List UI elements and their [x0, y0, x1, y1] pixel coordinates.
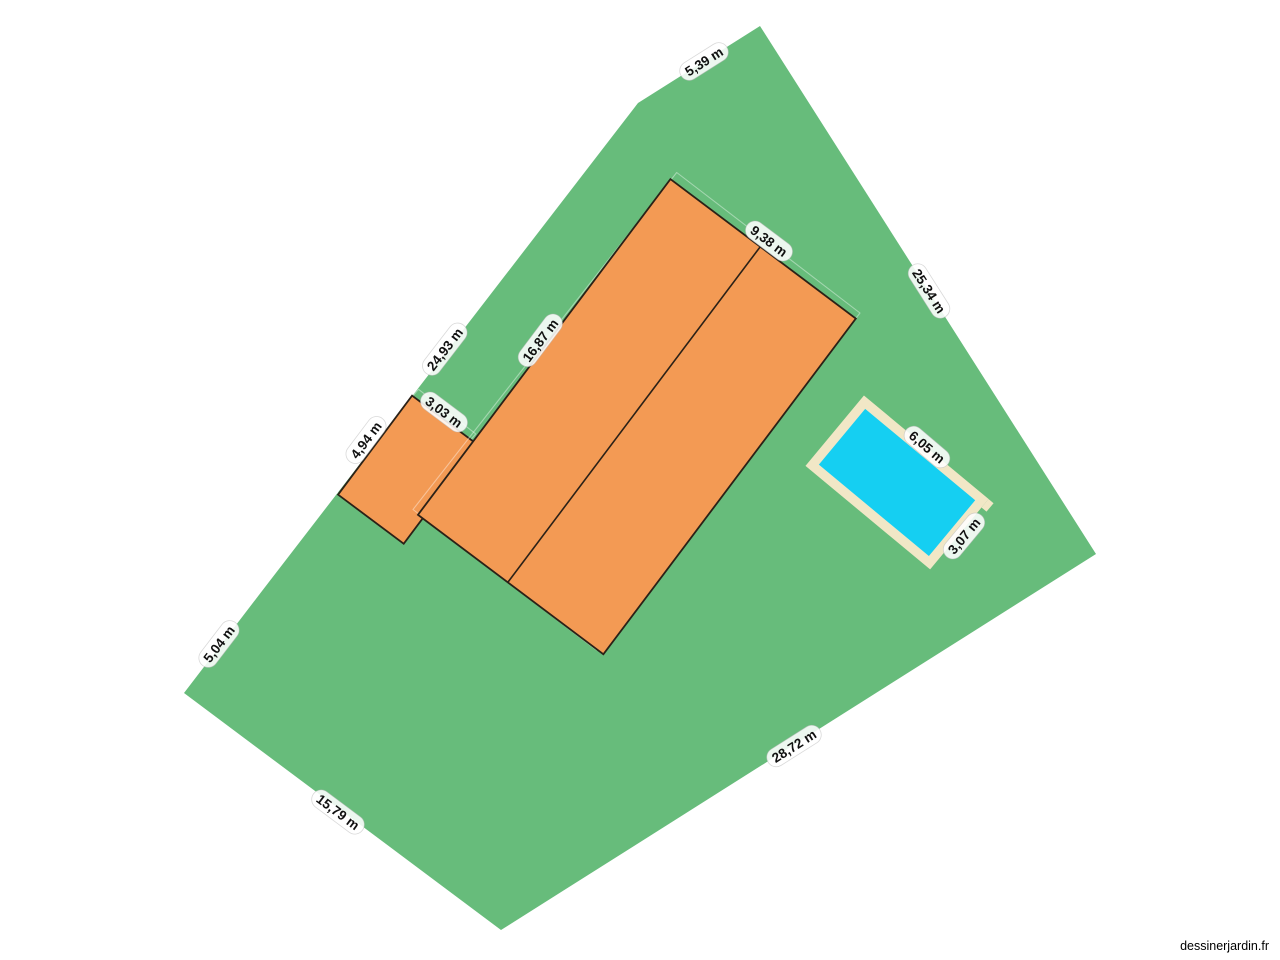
svg-text:dessinerjardin.fr: dessinerjardin.fr: [1180, 939, 1269, 953]
